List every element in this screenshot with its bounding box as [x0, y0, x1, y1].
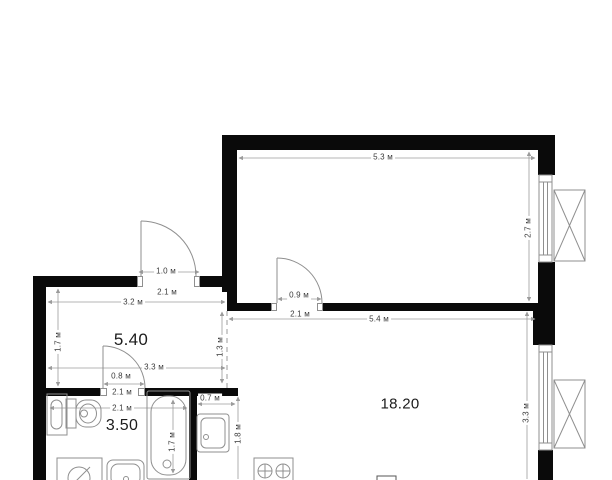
- dim-label: 2.1 м: [288, 310, 312, 319]
- dim-label: 0.9 м: [287, 291, 311, 300]
- floor-plan: 5.40 3.50 18.20 5.3 м 2.7 м 1.0 м 2.1 м …: [0, 0, 612, 480]
- dim-label: 1.7 м: [54, 330, 63, 354]
- dim-label: 2.7 м: [524, 216, 533, 240]
- dim-label: 1.0 м: [154, 267, 178, 276]
- room-area-label: 18.20: [380, 396, 419, 413]
- dim-label: 3.2 м: [121, 298, 145, 307]
- dim-label: 1.8 м: [234, 422, 243, 446]
- dim-label: 1.7 м: [168, 430, 177, 454]
- dim-label: 3.3 м: [522, 401, 531, 425]
- kitchen-sink-icon: [197, 414, 229, 452]
- plan-linework: [0, 0, 612, 480]
- washbasin-icon: [107, 460, 144, 480]
- dim-label: 2.1 м: [110, 388, 134, 397]
- dim-label: 1.3 м: [216, 335, 225, 359]
- washbasin-cabinet-icon: [47, 394, 67, 435]
- dim-label: 5.3 м: [371, 153, 395, 162]
- dim-label: 5.4 м: [367, 315, 391, 324]
- dim-label: 0.8 м: [109, 372, 133, 381]
- furniture-edge: [377, 476, 396, 480]
- window-icon: [539, 345, 552, 450]
- bathroom-door-icon: [103, 346, 145, 388]
- room-area-label: 5.40: [114, 330, 148, 350]
- dim-label: 3.3 м: [142, 363, 166, 372]
- toilet-icon: [66, 399, 101, 428]
- dim-label: 2.1 м: [110, 404, 134, 413]
- stove-icon: [254, 458, 293, 480]
- dim-label: 2.1 м: [155, 288, 179, 297]
- dim-label: 0.7 м: [198, 394, 222, 403]
- washing-machine-icon: [57, 458, 102, 480]
- window-icon: [539, 175, 552, 262]
- radiator-icon: [554, 190, 585, 261]
- radiator-icon: [554, 380, 585, 448]
- room-area-label: 3.50: [106, 417, 138, 435]
